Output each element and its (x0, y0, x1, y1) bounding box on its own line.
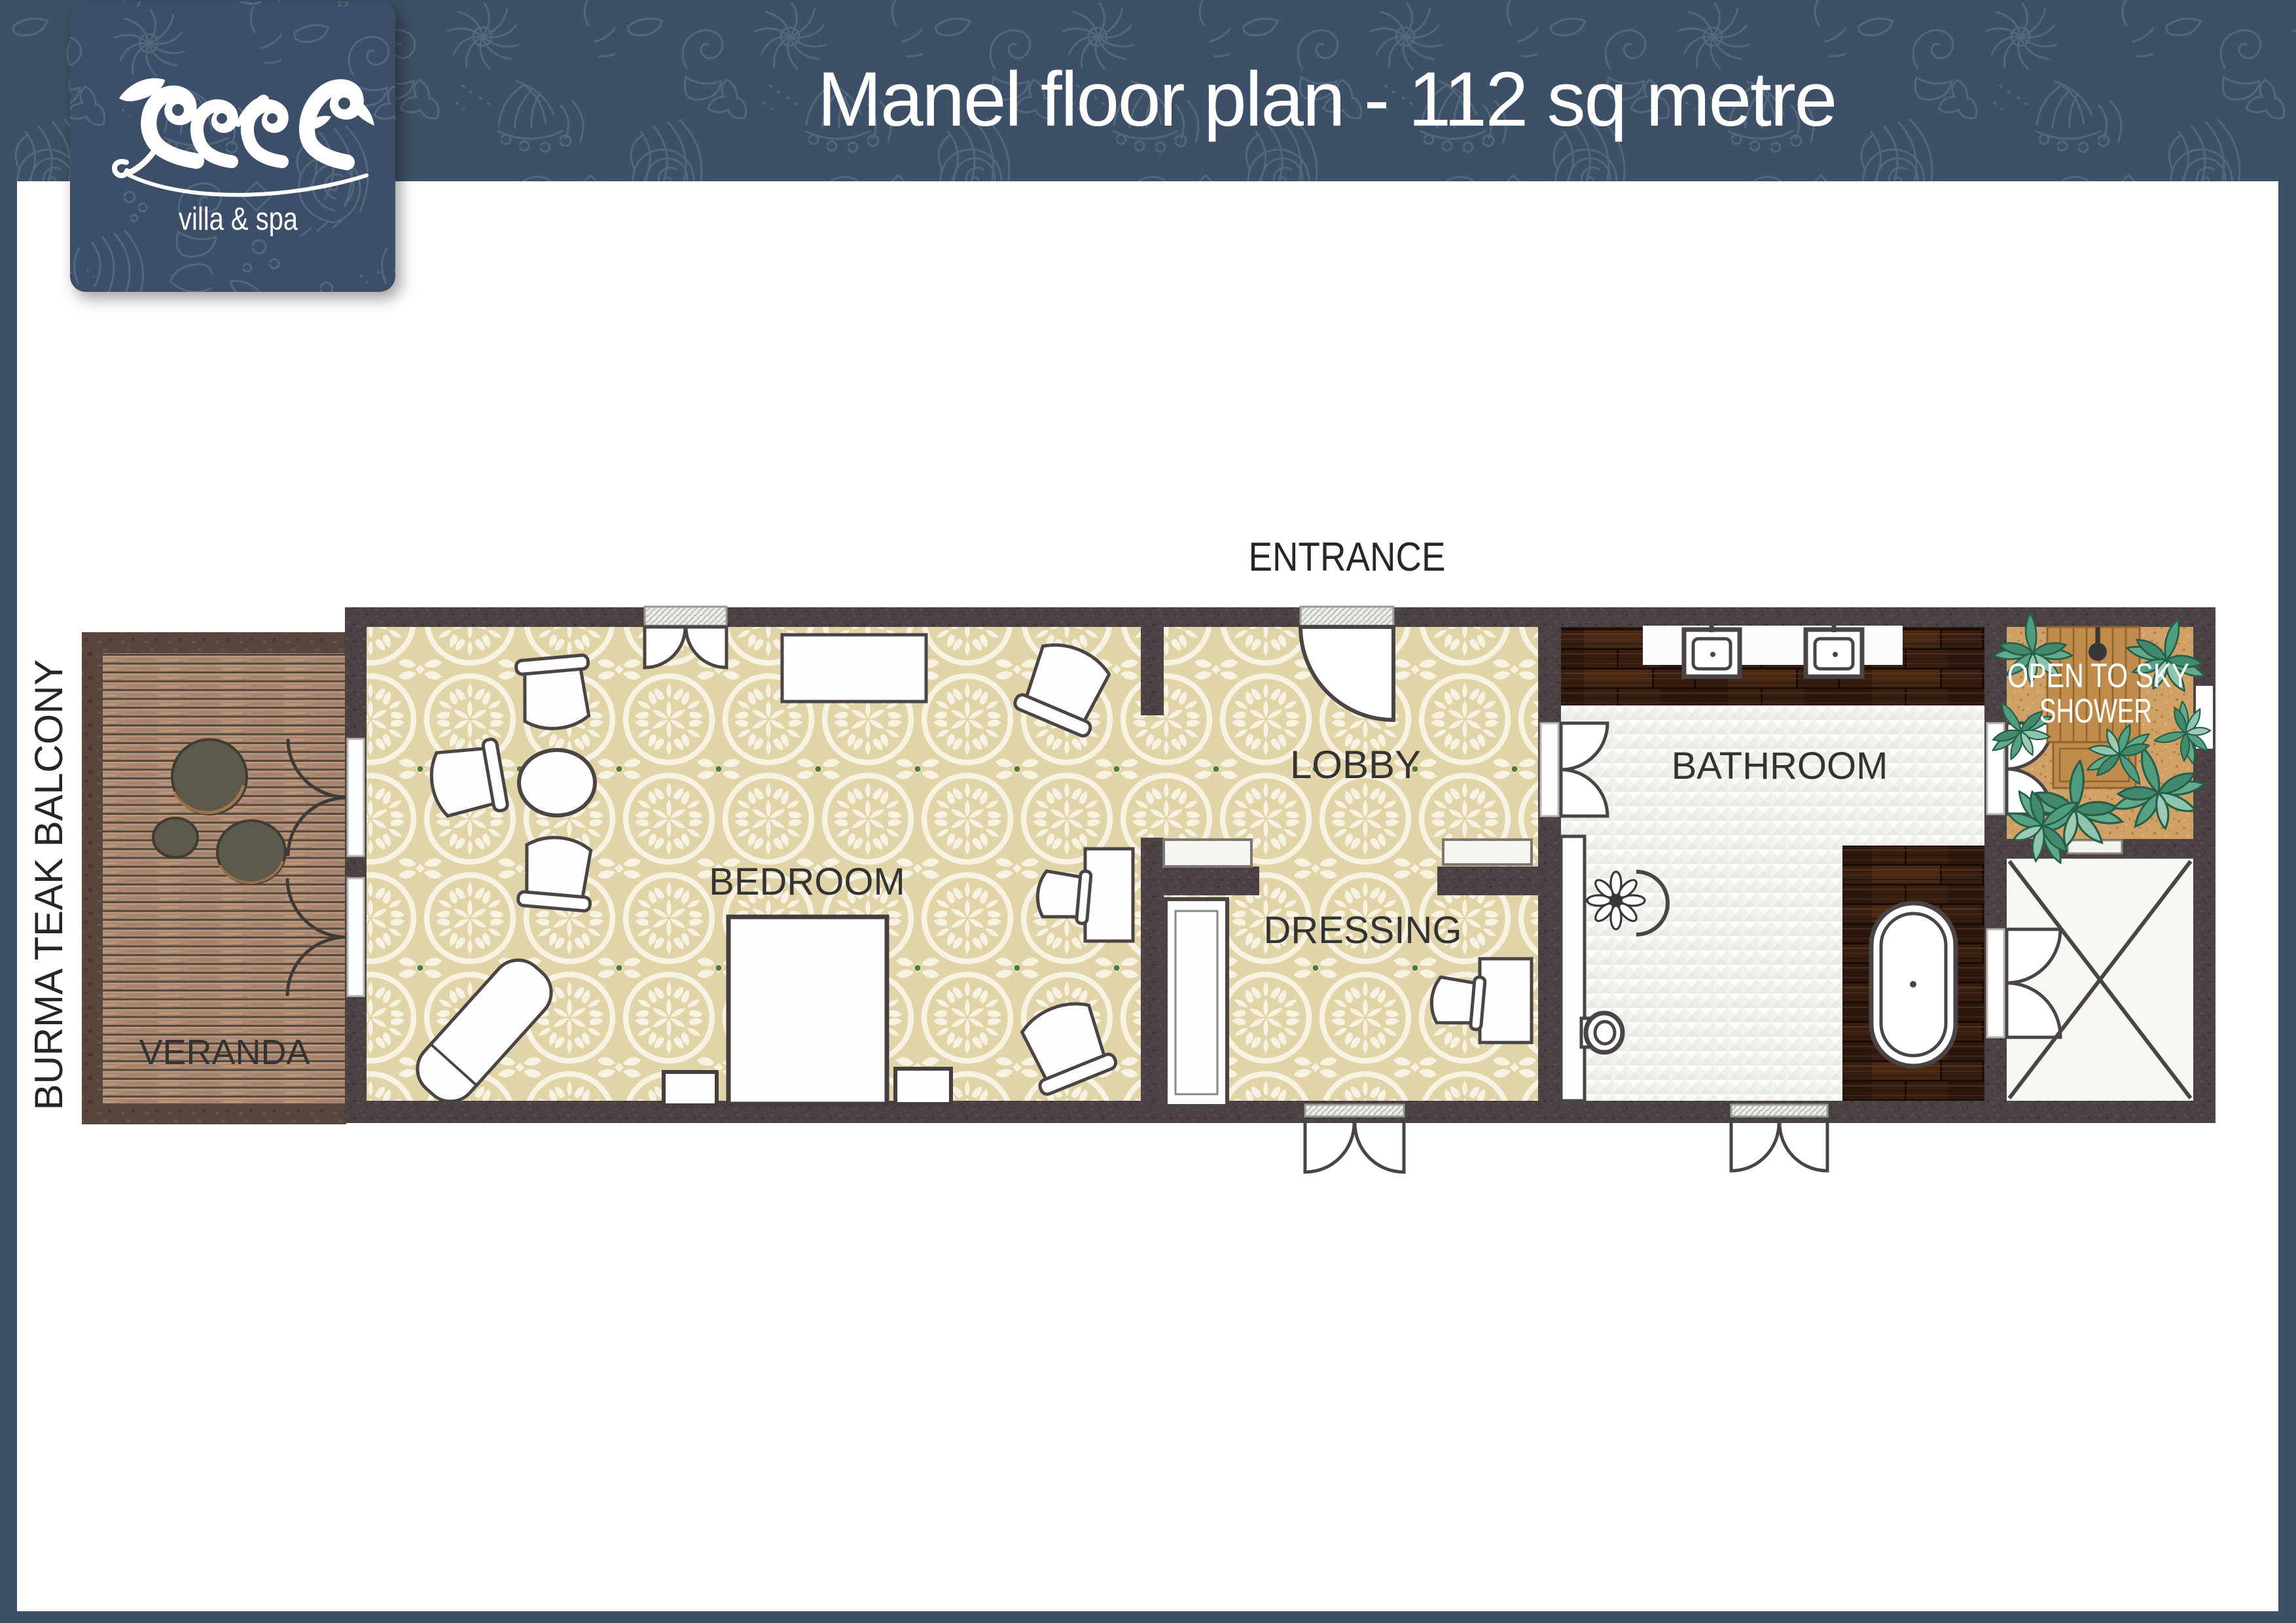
svg-text:ENTRANCE: ENTRANCE (1249, 535, 1446, 580)
svg-text:SHOWER: SHOWER (2039, 692, 2152, 730)
svg-text:LOBBY: LOBBY (1290, 743, 1421, 787)
svg-text:BATHROOM: BATHROOM (1672, 745, 1888, 787)
svg-text:BEDROOM: BEDROOM (709, 861, 905, 903)
svg-text:VERANDA: VERANDA (139, 1033, 310, 1072)
svg-text:DRESSING: DRESSING (1264, 909, 1462, 952)
svg-text:villa & spa: villa & spa (179, 202, 298, 237)
svg-text:Manel floor plan - 112 sq metr: Manel floor plan - 112 sq metre (817, 56, 1836, 143)
svg-text:OPEN TO SKY: OPEN TO SKY (2007, 657, 2189, 695)
svg-text:BURMA TEAK BALCONY: BURMA TEAK BALCONY (27, 659, 71, 1110)
